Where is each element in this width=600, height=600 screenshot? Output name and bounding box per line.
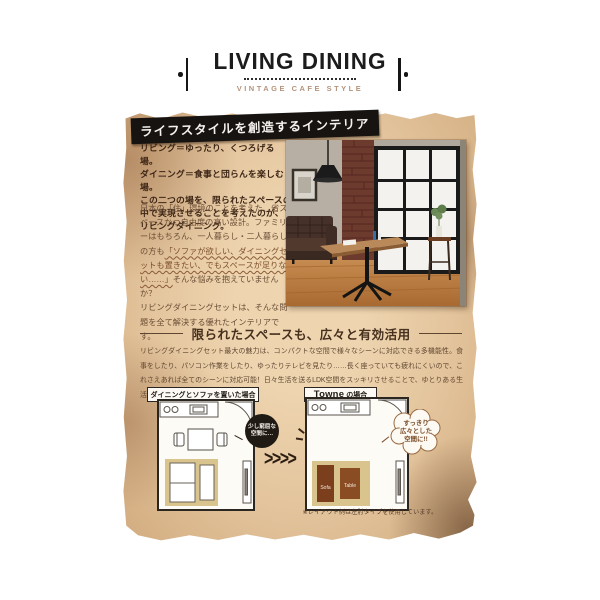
- photo-window: [374, 146, 460, 274]
- fp-tv-board: [396, 461, 404, 503]
- page-title: LIVING DINING: [6, 50, 594, 73]
- spacious-bubble: すっきり 広々とした 空間に!!: [390, 409, 442, 455]
- ornament-left-icon: [178, 58, 188, 91]
- layout-footnote: ※レイアウト例は左肘タイプを使用しています。: [265, 507, 475, 516]
- room-photo: [286, 140, 466, 306]
- fp-kitchen: [160, 402, 218, 417]
- photo-wall-right: [460, 140, 466, 306]
- divider-line-right: [419, 333, 462, 334]
- poster-sheet: ライフスタイルを創造するインテリア リビング＝ゆったり、くつろげる場。 ダイニン…: [115, 103, 485, 556]
- ornament-dot-icon: [404, 72, 409, 77]
- ornament-right-icon: [398, 58, 408, 91]
- page-root: LIVING DINING VINTAGE CAFE STYLE ライフスタイル…: [0, 0, 600, 600]
- fp-kitchen: [308, 400, 370, 415]
- ornament-bar-icon: [186, 58, 189, 91]
- intro-body: 日本の「住」環境のことを考えた、省スペースかつ自由度の高い設計。ファミリーはもち…: [140, 202, 290, 344]
- fp-tv-board: [243, 461, 251, 503]
- divider-line-left: [140, 333, 183, 334]
- fp-table-label: Table: [344, 483, 356, 489]
- dotted-divider: [244, 78, 356, 80]
- ornament-bar-icon: [398, 58, 401, 91]
- fp-sofa-white: [170, 463, 214, 502]
- section-divider: 限られたスペースも、広々と有効活用: [140, 324, 462, 343]
- spacious-bubble-text: すっきり 広々とした 空間に!!: [390, 409, 442, 455]
- cramped-badge: 少し窮屈な 空間に…: [245, 414, 279, 448]
- ornament-dot-icon: [178, 72, 183, 77]
- page-subtitle: VINTAGE CAFE STYLE: [0, 84, 600, 93]
- fp-sofa-label: Sofa: [320, 485, 331, 491]
- section-heading: 限られたスペースも、広々と有効活用: [191, 324, 410, 343]
- photo-sofa: [286, 216, 337, 264]
- transition-arrows: >>>>: [264, 449, 295, 472]
- floorplan-before: [157, 399, 257, 513]
- header: LIVING DINING VINTAGE CAFE STYLE: [0, 50, 600, 93]
- photo-picture-frame: [293, 170, 316, 200]
